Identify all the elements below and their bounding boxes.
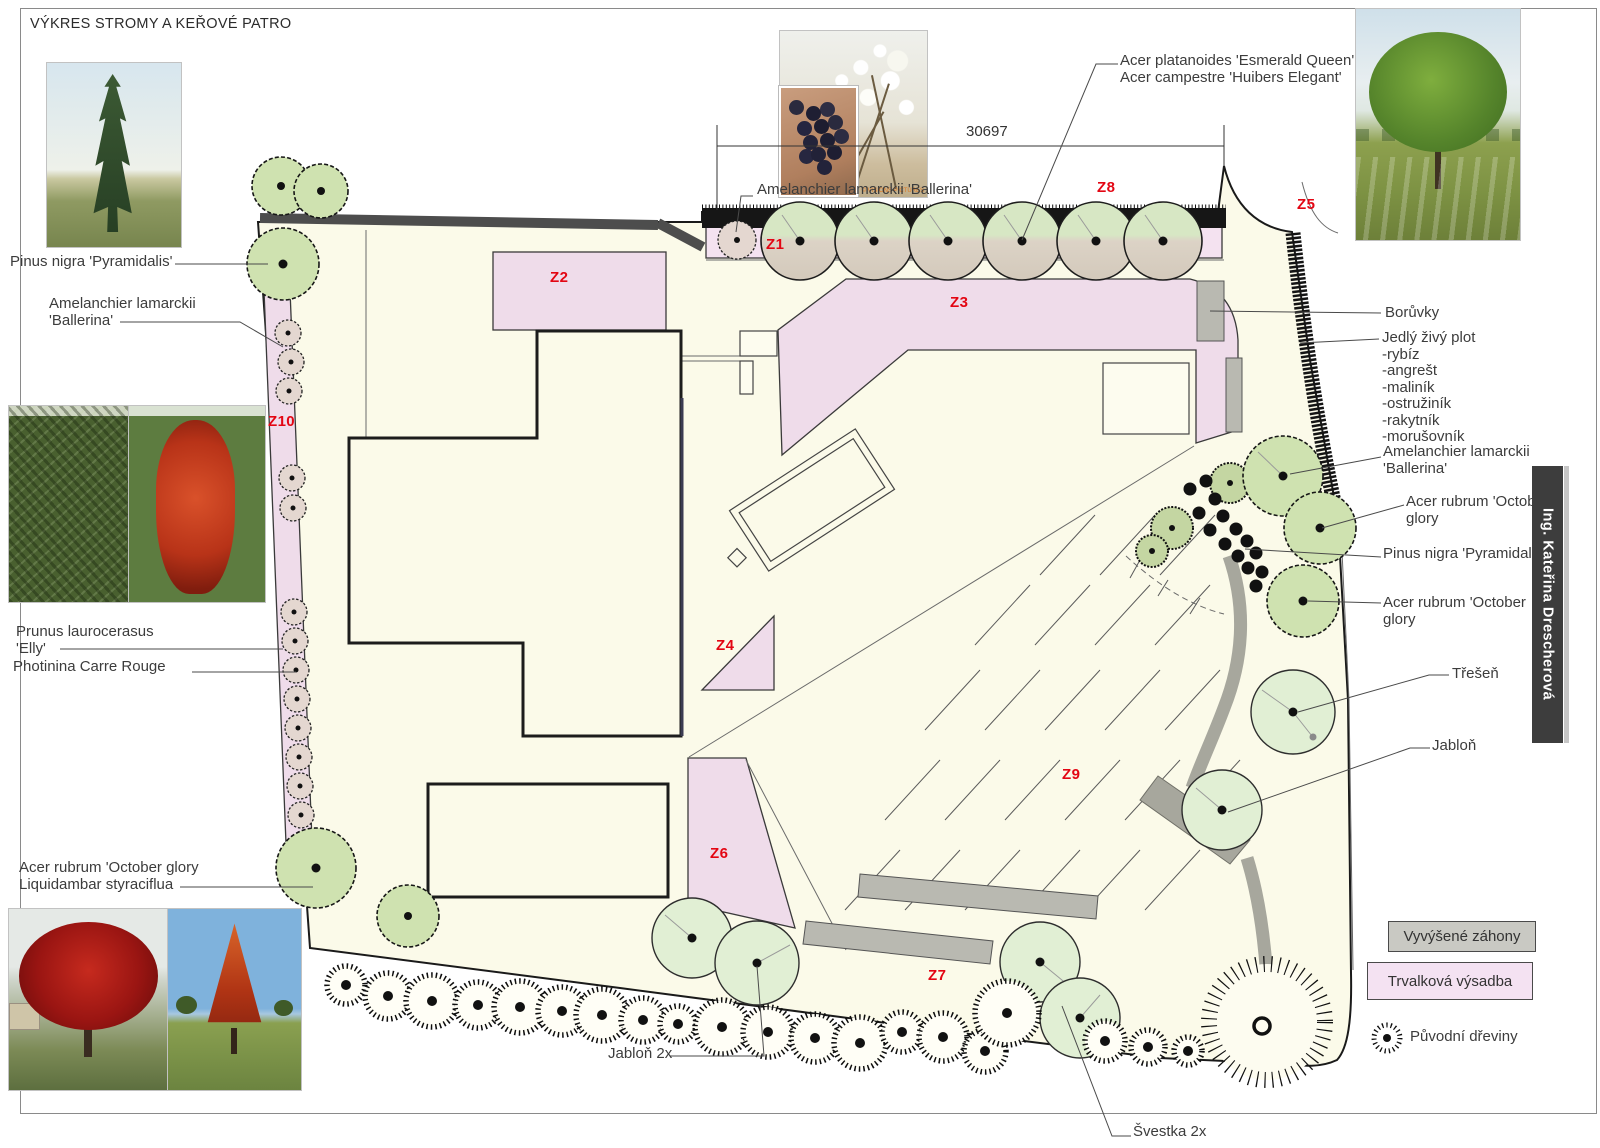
label-jablon: Jabloň bbox=[1432, 738, 1476, 755]
author-name: Ing. Kateřina Drescherová bbox=[1540, 508, 1556, 700]
label-amelanchier-left: Amelanchier lamarckii 'Ballerina' bbox=[49, 296, 196, 329]
author-sidebar: Ing. Kateřina Drescherová bbox=[1532, 466, 1563, 743]
annex-rect bbox=[740, 361, 753, 394]
zone-label-z9: Z9 bbox=[1062, 766, 1080, 783]
outbuilding bbox=[1103, 363, 1189, 434]
sidebar-strip bbox=[1564, 466, 1569, 743]
label-pinus-left: Pinus nigra 'Pyramidalis' bbox=[10, 254, 172, 271]
label-jablon-2x: Jabloň 2x bbox=[608, 1046, 672, 1063]
zone-label-z10: Z10 bbox=[268, 413, 295, 430]
alley-tree bbox=[1124, 202, 1202, 280]
zone-z2-bed bbox=[493, 252, 666, 330]
label-svestka-2x: Švestka 2x bbox=[1133, 1124, 1206, 1141]
label-photinia: Photinina Carre Rouge bbox=[13, 659, 166, 676]
zone-label-z1: Z1 bbox=[766, 236, 784, 253]
alley-tree bbox=[835, 202, 913, 280]
label-amelanchier-right: Amelanchier lamarckii 'Ballerina' bbox=[1383, 444, 1530, 477]
berry-bed bbox=[1226, 358, 1242, 432]
label-prunus-elly: Prunus laurocerasus 'Elly' bbox=[16, 624, 154, 657]
plan-canvas: VÝKRES STROMY A KEŘOVÉ PATRO © VISIONS P… bbox=[0, 0, 1600, 1148]
original-tree-symbol-icon bbox=[1366, 1017, 1408, 1059]
alley-tree bbox=[983, 202, 1061, 280]
zone-label-z5: Z5 bbox=[1297, 196, 1315, 213]
label-acer-liquidambar: Acer rubrum 'October glory Liquidambar s… bbox=[19, 860, 199, 893]
alley-tree bbox=[909, 202, 987, 280]
label-tresen: Třešeň bbox=[1452, 666, 1499, 683]
legend-raised-beds-label: Vyvýšené záhony bbox=[1403, 928, 1520, 945]
legend-raised-beds: Vyvýšené záhony bbox=[1388, 921, 1536, 952]
label-edible-hedge: Jedlý živý plot -rybíz -angrešt -maliník… bbox=[1382, 330, 1475, 446]
label-amelanchier-center: Amelanchier lamarckii 'Ballerina' bbox=[757, 182, 972, 199]
legend-perennials-label: Trvalková výsadba bbox=[1388, 973, 1513, 990]
zone-label-z3: Z3 bbox=[950, 294, 968, 311]
label-pinus-right: Pinus nigra 'Pyramidalis' bbox=[1383, 546, 1545, 563]
site-plan-drawing bbox=[0, 0, 1600, 1148]
zone-label-z8: Z8 bbox=[1097, 179, 1115, 196]
legend-perennials: Trvalková výsadba bbox=[1367, 962, 1533, 1000]
label-boruvky: Borůvky bbox=[1385, 305, 1439, 322]
zone-label-z2: Z2 bbox=[550, 269, 568, 286]
zone-label-z7: Z7 bbox=[928, 967, 946, 984]
label-acer-october-2: Acer rubrum 'October glory bbox=[1383, 595, 1526, 628]
garage-building bbox=[428, 784, 668, 897]
annex-rect bbox=[740, 331, 777, 356]
dimension-value: 30697 bbox=[966, 123, 1008, 140]
zone-label-z4: Z4 bbox=[716, 637, 734, 654]
label-acer-platanoides: Acer platanoides 'Esmerald Queen' Acer c… bbox=[1120, 53, 1354, 86]
boundary-wall bbox=[260, 218, 658, 225]
zone-label-z6: Z6 bbox=[710, 845, 728, 862]
label-acer-october-1: Acer rubrum 'October glory bbox=[1406, 494, 1549, 527]
legend-original-trees-label: Původní dřeviny bbox=[1410, 1029, 1518, 1046]
